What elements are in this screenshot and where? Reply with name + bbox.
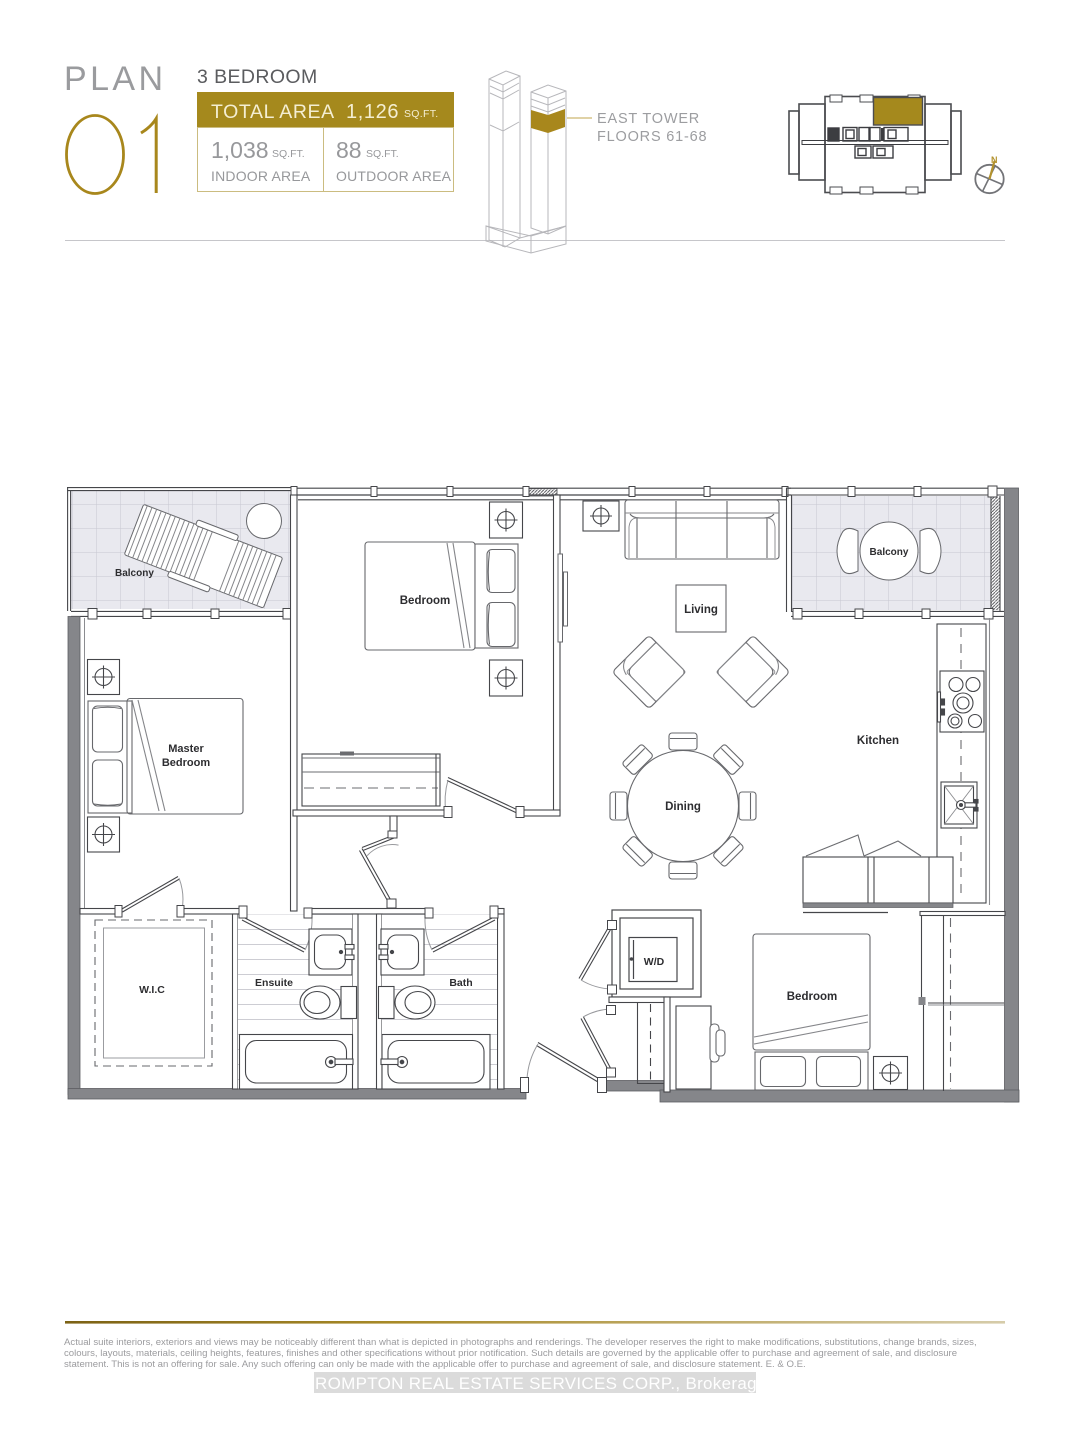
svg-text:EAST TOWER: EAST TOWER (597, 111, 700, 127)
svg-text:1,038: 1,038 (211, 137, 269, 163)
svg-text:SQ.FT.: SQ.FT. (366, 148, 399, 160)
svg-text:OUTDOOR AREA: OUTDOOR AREA (336, 168, 452, 184)
svg-text:Bath: Bath (449, 977, 472, 989)
svg-text:Master: Master (168, 743, 204, 755)
svg-text:Living: Living (684, 604, 718, 616)
svg-text:Bedroom: Bedroom (787, 991, 837, 1003)
svg-text:N: N (991, 155, 998, 165)
svg-text:Kitchen: Kitchen (857, 735, 899, 747)
svg-text:88: 88 (336, 137, 362, 163)
svg-text:SQ.FT.: SQ.FT. (272, 148, 305, 160)
svg-text:PLAN: PLAN (64, 60, 166, 98)
svg-text:1,126: 1,126 (346, 101, 399, 123)
svg-text:colours, layouts, materials, c: colours, layouts, materials, ceiling hei… (64, 1348, 957, 1359)
svg-text:TOTAL AREA: TOTAL AREA (211, 101, 335, 123)
svg-text:W/D: W/D (644, 956, 665, 968)
svg-text:Actual suite interiors, exteri: Actual suite interiors, exteriors and vi… (64, 1337, 977, 1348)
svg-text:SQ.FT.: SQ.FT. (404, 108, 438, 120)
svg-text:statement. This is not an offe: statement. This is not an offering for s… (64, 1359, 806, 1370)
svg-text:Dining: Dining (665, 801, 701, 813)
svg-text:INDOOR AREA: INDOOR AREA (211, 168, 311, 184)
svg-text:Bedroom: Bedroom (400, 595, 450, 607)
svg-text:Balcony: Balcony (870, 547, 909, 558)
svg-text:FLOORS 61-68: FLOORS 61-68 (597, 129, 707, 145)
svg-text:PROMPTON REAL ESTATE SERVICES: PROMPTON REAL ESTATE SERVICES CORP., Bro… (303, 1374, 766, 1393)
svg-text:Ensuite: Ensuite (255, 977, 293, 989)
svg-text:3 BEDROOM: 3 BEDROOM (197, 66, 318, 88)
svg-text:W.I.C: W.I.C (139, 984, 165, 996)
svg-text:Bedroom: Bedroom (162, 757, 211, 769)
svg-text:Balcony: Balcony (115, 568, 154, 579)
